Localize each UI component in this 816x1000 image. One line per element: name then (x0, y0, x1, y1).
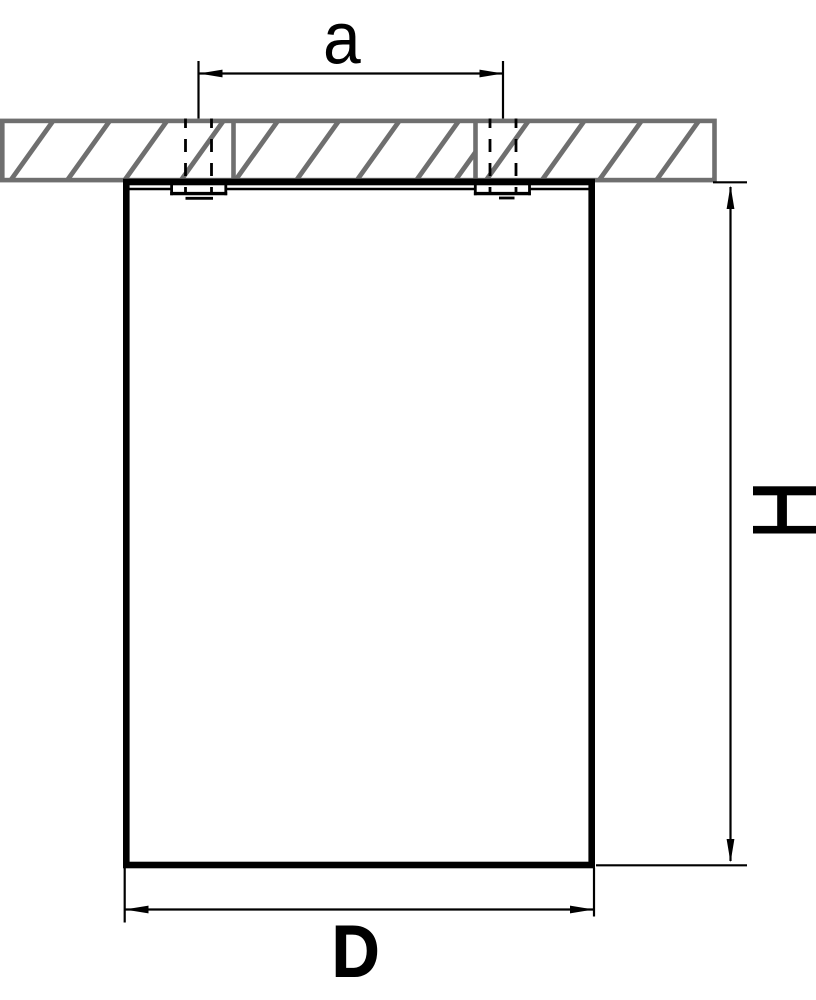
svg-text:a: a (323, 0, 361, 80)
svg-text:D: D (332, 912, 380, 993)
